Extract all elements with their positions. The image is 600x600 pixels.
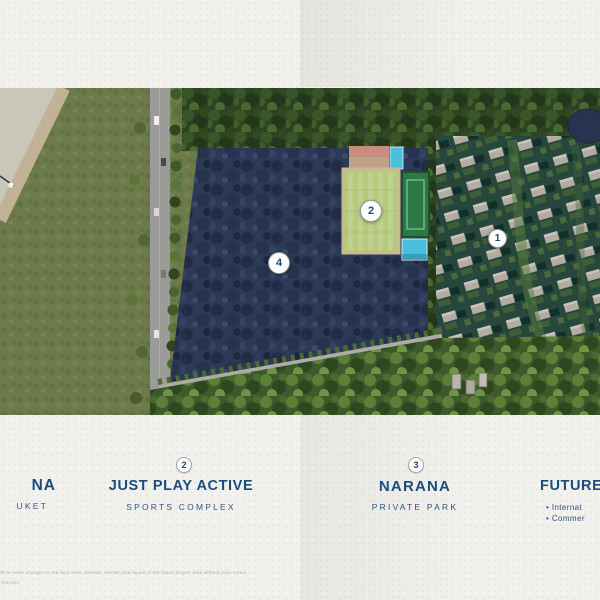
disclaimer-line-1: ght to make changes to the land area, co… (0, 570, 248, 575)
legend-item-park-title: NARANA (315, 478, 515, 495)
car (161, 270, 166, 278)
legend-item-sports-subtitle: SPORTS COMPLEX (81, 502, 281, 512)
disclaimer-line-2: r reasons. (0, 580, 20, 585)
future-bullet-1: • Internat (546, 503, 585, 514)
legend-item-future-title: FUTURE (540, 478, 600, 494)
pool-small (390, 147, 403, 169)
map-marker-2: 2 (360, 200, 382, 222)
map-marker-1: 1 (488, 229, 507, 248)
tennis-court (402, 172, 429, 237)
car (154, 116, 159, 125)
legend-number-2: 2 (176, 457, 192, 473)
villa-estate (436, 109, 600, 358)
legend-item-left-title: NA (0, 477, 56, 495)
beach-umbrella (8, 182, 13, 187)
brochure-page: 1 2 4 NA UKET 2 JUST PLAY ACTIVE SPORTS … (0, 0, 600, 600)
masterplan-graphic (0, 88, 600, 415)
paper-fold-shadow-top (300, 0, 475, 87)
legend-item-future-bullets: • Internat • Commer (546, 503, 585, 524)
legend-number-3: 3 (408, 457, 424, 473)
access-road (150, 88, 170, 415)
masterplan-aerial-map: 1 2 4 (0, 88, 600, 415)
legend-item-park-subtitle: PRIVATE PARK (315, 502, 515, 512)
car (154, 330, 159, 338)
car (161, 158, 166, 166)
clubhouse-roof (349, 146, 389, 157)
future-bullet-2: • Commer (546, 514, 585, 525)
car (154, 208, 159, 216)
legend-item-left-subtitle: UKET (0, 501, 48, 511)
map-marker-4: 4 (268, 252, 290, 274)
legend-item-sports-title: JUST PLAY ACTIVE (81, 478, 281, 494)
